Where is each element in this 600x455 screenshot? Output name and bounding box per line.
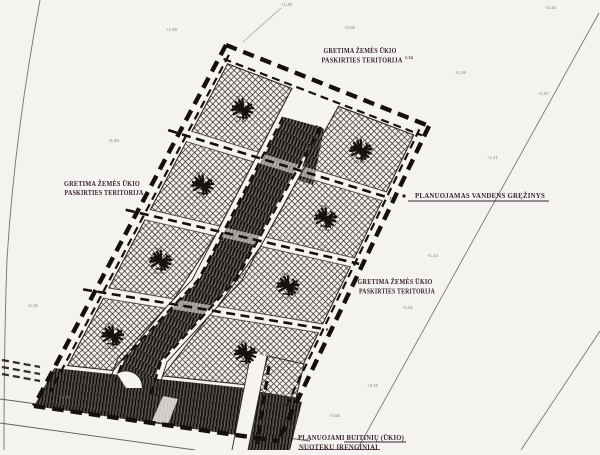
svg-text:+1.41: +1.41 [487,155,498,160]
svg-text:+1.36: +1.36 [27,303,38,308]
svg-text:0,1 ha: 0,1 ha [105,345,117,350]
svg-text:1.34: 1.34 [405,55,413,60]
svg-text:Nr.3: Nr.3 [196,170,203,175]
svg-text:Nr.5: Nr.5 [155,246,162,251]
svg-text:Nr.8: Nr.8 [239,339,246,344]
svg-text:+1.38: +1.38 [455,70,466,75]
svg-text:GRETIMA ŽEMĖS ŪKIO: GRETIMA ŽEMĖS ŪKIO [64,180,140,188]
svg-text:+1.51: +1.51 [402,305,413,310]
svg-text:+3.18: +3.18 [367,383,378,388]
svg-text:+1.98: +1.98 [166,27,177,32]
svg-text:PLANUOJAMAS VANDENS GRĘŽINYS: PLANUOJAMAS VANDENS GRĘŽINYS [415,190,545,200]
svg-text:Nr.4: Nr.4 [319,203,327,208]
svg-text:+2.30: +2.30 [545,5,556,10]
svg-text:GRETIMA ŽEMĖS ŪKIO: GRETIMA ŽEMĖS ŪKIO [324,45,397,55]
svg-text:0,1 ha: 0,1 ha [354,159,366,164]
svg-text:+1.57: +1.57 [538,91,549,96]
svg-text:0,1 ha: 0,1 ha [196,194,208,199]
svg-text:NUOTEKŲ ĮRENGINIAI: NUOTEKŲ ĮRENGINIAI [299,443,378,451]
svg-text:PASKIRTIES TERITORIJA: PASKIRTIES TERITORIJA [65,189,144,197]
svg-text:+2.08: +2.08 [344,25,355,30]
svg-text:+4.86: +4.86 [329,413,340,418]
svg-text:0,1 ha: 0,1 ha [235,118,247,123]
svg-text:GRETIMA ŽEMĖS ŪKIO: GRETIMA ŽEMĖS ŪKIO [358,278,433,286]
svg-text:Nr.6: Nr.6 [282,271,289,276]
svg-text:Nr.1: Nr.1 [236,94,243,99]
svg-text:0,1 ha: 0,1 ha [319,227,331,232]
svg-text:+1.30: +1.30 [281,2,292,7]
svg-text:PLANUOJAMI BUITINIŲ (ŪKIO): PLANUOJAMI BUITINIŲ (ŪKIO) [298,433,404,442]
svg-text:Nr.7: Nr.7 [106,321,113,326]
svg-text:+4.29: +4.29 [59,395,70,400]
svg-text:PASKIRTIES TERITORIJA: PASKIRTIES TERITORIJA [322,56,403,64]
svg-text:Nr.2: Nr.2 [355,135,362,140]
svg-text:+1.58: +1.58 [296,178,307,183]
svg-text:0,1 ha: 0,1 ha [154,270,166,275]
svg-text:0,1 ha: 0,1 ha [281,295,293,300]
svg-text:+1.84: +1.84 [108,138,119,143]
svg-text:PASKIRTIES TERITORIJA: PASKIRTIES TERITORIJA [359,288,435,296]
svg-text:0,1 ha: 0,1 ha [238,363,250,368]
svg-text:+1.44: +1.44 [427,253,438,258]
